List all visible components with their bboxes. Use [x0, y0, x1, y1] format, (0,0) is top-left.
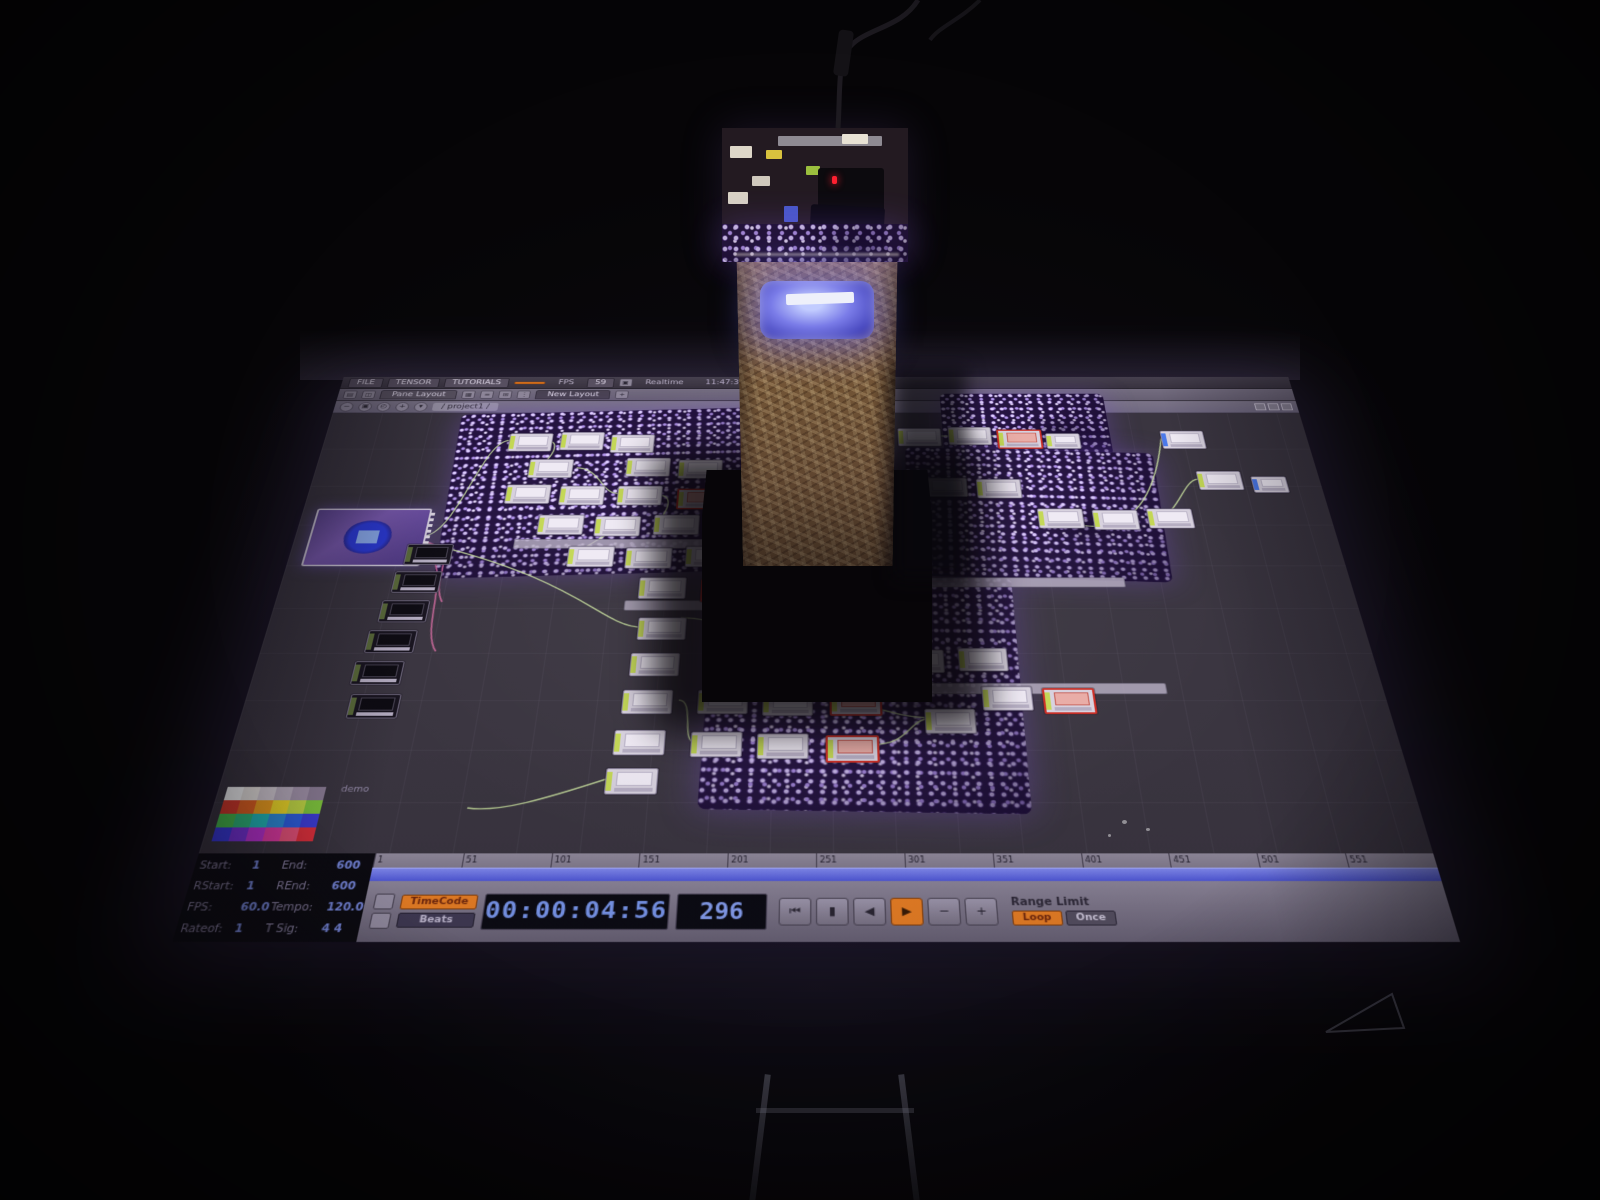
palette-swatch[interactable]	[306, 787, 326, 800]
transport-bar: TimeCodeBeats 00:00:04:56 296 ⏮▮◀▶−+ Ran…	[356, 881, 1460, 942]
realtime-toggle[interactable]: Realtime	[637, 378, 692, 388]
network-node[interactable]	[558, 486, 605, 505]
ruler-tick: 201	[727, 853, 816, 867]
network-node[interactable]	[981, 686, 1034, 710]
node-label	[1157, 523, 1191, 526]
ladder-crossbar	[756, 1108, 914, 1113]
transport-pause[interactable]: ▮	[816, 897, 849, 925]
network-node[interactable]	[536, 515, 585, 535]
transport-step-forward[interactable]: +	[964, 897, 999, 925]
node-label	[766, 753, 804, 757]
ruler-tick: 101	[550, 853, 640, 867]
node-label	[536, 473, 569, 476]
floor-speck-3	[1108, 834, 1111, 837]
node-label	[567, 500, 600, 503]
node-label	[1262, 488, 1286, 491]
pane-split-icon[interactable]: ▤	[342, 391, 357, 399]
network-node[interactable]	[757, 734, 809, 759]
timeline-field-label: T Sig:	[262, 920, 324, 942]
timeline-field-label: Rateof:	[177, 920, 237, 942]
network-node[interactable]	[566, 546, 615, 567]
home-button[interactable]: ▣	[357, 402, 373, 411]
layout-icon-4[interactable]: ⋮	[517, 391, 532, 399]
node-label	[602, 531, 636, 534]
loop-buttons: LoopOnce	[1012, 911, 1118, 926]
node-label	[700, 751, 738, 755]
timeline-field-label: RStart:	[190, 878, 249, 899]
loop-button-loop[interactable]: Loop	[1012, 911, 1063, 926]
network-node[interactable]	[826, 735, 880, 762]
transport-buttons: ⏮▮◀▶−+	[778, 897, 998, 925]
network-node[interactable]	[610, 435, 655, 453]
floor-triangle-mark	[1322, 988, 1408, 1038]
floor-speck-1	[1122, 820, 1127, 824]
ruler-tick: 401	[1081, 853, 1172, 867]
network-node[interactable]	[1146, 509, 1196, 529]
node-label	[992, 704, 1029, 707]
palette-swatch[interactable]	[303, 800, 323, 814]
node-label	[545, 530, 579, 533]
mode-button-beats[interactable]: Beats	[396, 913, 476, 928]
tab-new-layout[interactable]: New Layout	[535, 390, 611, 399]
network-node[interactable]	[504, 485, 552, 504]
network-node[interactable]	[350, 661, 405, 684]
loop-button-once[interactable]: Once	[1065, 911, 1118, 926]
network-node[interactable]	[604, 768, 659, 794]
timeline-ruler[interactable]: 151101151201251301351401451501551	[372, 853, 1438, 868]
range-limit-block: Range Limit LoopOnce	[1010, 897, 1117, 926]
expand-button[interactable]: ▾	[413, 402, 429, 411]
node-label	[986, 493, 1019, 496]
node-label	[412, 560, 447, 563]
menu-item-file[interactable]: FILE	[348, 378, 384, 388]
stage-photo: FILETENSORTUTORIALS FPS 59 ▣ Realtime 11…	[0, 0, 1600, 1200]
timeline-field-label: FPS:	[183, 899, 243, 920]
network-node[interactable]	[346, 694, 402, 718]
fps-value: 59	[586, 378, 614, 388]
network-node[interactable]	[391, 571, 443, 592]
ruler-tick: 351	[992, 853, 1082, 867]
timeline-field-label: Start:	[196, 857, 254, 877]
ruler-tick: 1	[372, 853, 463, 867]
node-label	[513, 499, 546, 502]
menu-item-tensor[interactable]: TENSOR	[386, 378, 440, 388]
alert-badge[interactable]	[514, 381, 546, 383]
network-node[interactable]	[996, 430, 1043, 449]
node-label	[356, 712, 394, 716]
node-label	[618, 448, 650, 451]
network-node[interactable]	[403, 544, 454, 565]
node-label	[400, 587, 435, 590]
pane-grid-icon[interactable]: ◫	[361, 391, 376, 399]
node-label	[374, 647, 410, 650]
refresh-button[interactable]: ◴	[376, 402, 392, 411]
node-label	[1170, 444, 1202, 447]
glowing-blue-device[interactable]	[760, 281, 874, 339]
node-label	[1055, 707, 1092, 710]
timeline-field-label: Tempo:	[267, 899, 328, 920]
palette-swatch[interactable]	[296, 827, 316, 841]
ruler-tick: 451	[1169, 853, 1260, 867]
column-cast-shadow	[893, 368, 967, 580]
timeline-range-bar[interactable]	[369, 868, 1442, 882]
ladder-leg-left	[749, 1074, 771, 1200]
add-button[interactable]: +	[394, 402, 410, 411]
network-node[interactable]	[527, 459, 574, 478]
mode-button-timecode[interactable]: TimeCode	[399, 895, 478, 910]
network-node[interactable]	[612, 730, 666, 755]
menu-items: FILETENSORTUTORIALS	[348, 378, 510, 388]
node-label	[568, 446, 600, 449]
node-label	[836, 755, 874, 759]
network-node[interactable]	[1250, 476, 1290, 492]
node-label	[1055, 444, 1078, 447]
network-node[interactable]	[1045, 433, 1082, 448]
node-label	[1047, 523, 1081, 526]
frame-display: 296	[675, 893, 767, 929]
ruler-tick: 51	[461, 853, 552, 867]
ruler-tick: 301	[904, 853, 993, 867]
layout-icon-2[interactable]: ≡	[480, 391, 495, 399]
node-label	[360, 679, 397, 682]
transport-jump-start[interactable]: ⏮	[778, 897, 811, 925]
network-node[interactable]	[593, 516, 641, 536]
floor-speck-2	[1146, 828, 1150, 831]
realtime-icon[interactable]: ▣	[619, 379, 633, 387]
palette-swatch[interactable]	[299, 814, 319, 828]
layout-icon-1[interactable]: ▦	[461, 391, 476, 399]
network-node[interactable]	[507, 433, 554, 451]
network-node[interactable]	[377, 600, 430, 622]
ruler-tick: 251	[816, 853, 905, 867]
transport-play[interactable]: ▶	[890, 897, 924, 925]
ruler-tick: 551	[1345, 853, 1437, 867]
transport-play-reverse[interactable]: ◀	[853, 897, 886, 925]
node-label	[614, 788, 653, 792]
timecode-display: 00:00:04:56	[480, 893, 671, 929]
network-node[interactable]	[1196, 471, 1245, 490]
node-label	[622, 749, 660, 753]
network-node[interactable]	[1037, 509, 1085, 529]
network-node[interactable]	[1159, 431, 1206, 449]
node-label	[575, 562, 609, 565]
add-layout-button[interactable]: +	[615, 391, 629, 399]
network-node[interactable]	[1092, 510, 1141, 530]
back-button[interactable]: −	[339, 402, 355, 411]
device-white-strip	[786, 292, 854, 305]
node-label	[1007, 444, 1039, 447]
network-node[interactable]	[559, 432, 605, 450]
viewer-square	[355, 530, 379, 543]
range-limit-label: Range Limit	[1010, 897, 1115, 909]
timeline-field-label: REnd:	[273, 878, 333, 899]
network-node[interactable]	[1042, 688, 1098, 714]
tab-pane-layout[interactable]: Pane Layout	[379, 390, 458, 399]
palette-label: demo	[340, 785, 370, 794]
network-node[interactable]	[690, 732, 743, 757]
node-label	[1103, 525, 1137, 528]
fps-label: FPS	[550, 378, 583, 388]
node-label	[387, 617, 423, 620]
menu-item-tutorials[interactable]: TUTORIALS	[443, 378, 510, 388]
timeline-settings-panel: Start:1End:600RStart:1REnd:600FPS:60.0Te…	[172, 853, 376, 942]
ceiling-cable	[740, 0, 1040, 260]
transport-step-back[interactable]: −	[927, 897, 961, 925]
breadcrumb[interactable]: / project1 /	[432, 403, 499, 411]
color-palette[interactable]	[211, 787, 326, 841]
ladder-leg-right	[898, 1074, 920, 1200]
window-controls[interactable]	[1254, 403, 1293, 410]
network-node[interactable]	[364, 630, 418, 653]
ruler-tick: 501	[1257, 853, 1349, 867]
node-label	[516, 447, 548, 450]
time-mode-buttons: TimeCodeBeats	[396, 895, 479, 928]
timeline-option-buttons[interactable]	[368, 894, 395, 929]
ruler-tick: 151	[639, 853, 728, 867]
layout-icon-3[interactable]: ⊞	[498, 391, 513, 399]
timeline-field-label: End:	[278, 857, 338, 877]
node-label	[1207, 485, 1240, 488]
